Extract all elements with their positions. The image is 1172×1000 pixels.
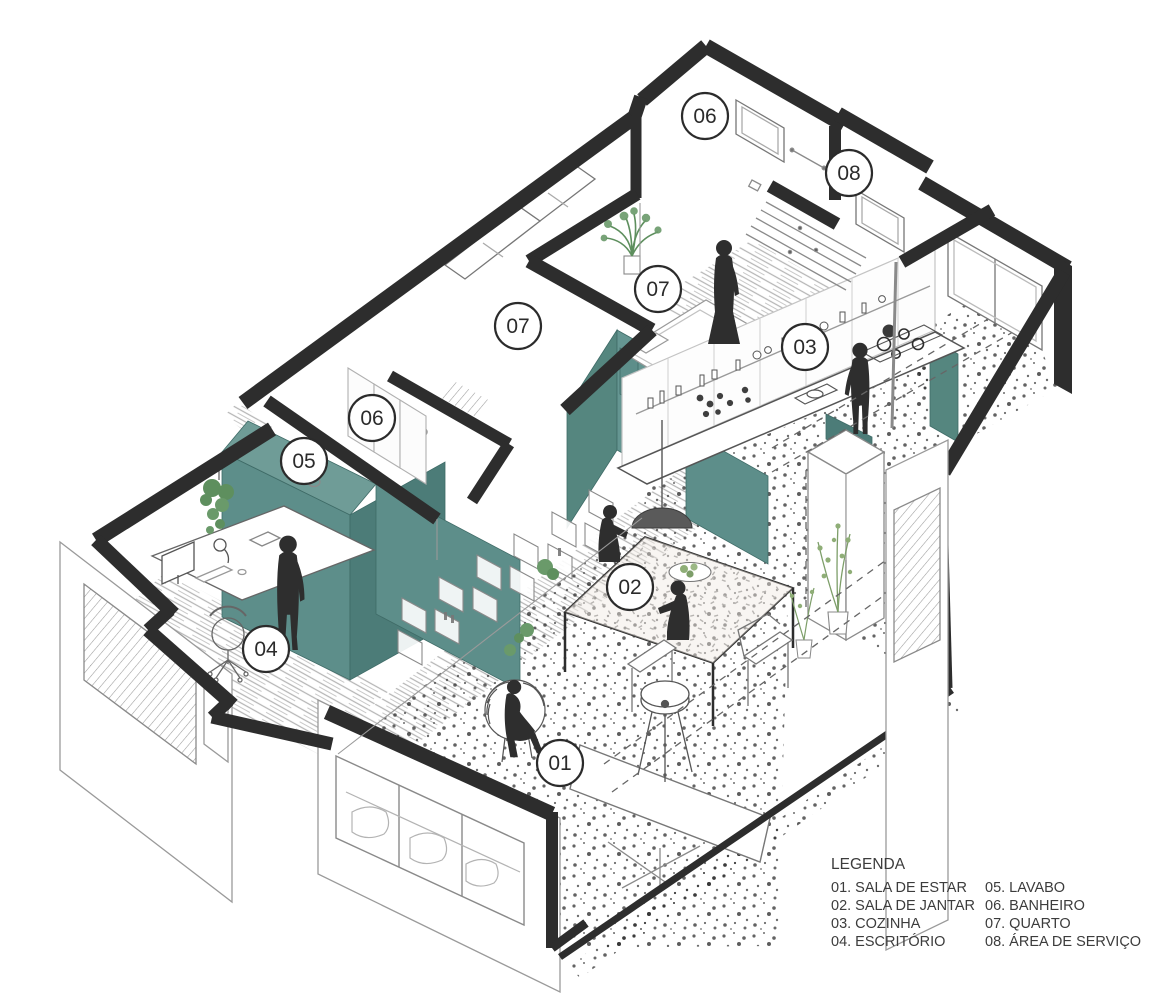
floor-plan-page: 06 08 07 03 07 06 05 04 bbox=[0, 0, 1172, 1000]
bedroom-left-windows bbox=[445, 165, 595, 279]
floor-plan-axonometric: 06 08 07 03 07 06 05 04 bbox=[0, 0, 1172, 1000]
wall-int-bath-b bbox=[472, 444, 509, 501]
svg-text:02: 02 bbox=[618, 576, 641, 599]
svg-text:05: 05 bbox=[292, 450, 315, 473]
room-label-02: 02 bbox=[607, 564, 653, 610]
legend-title: LEGENDA bbox=[831, 856, 906, 873]
legend-item-02: 02. SALA DE JANTAR bbox=[831, 898, 975, 914]
room-label-06-left: 06 bbox=[349, 395, 395, 441]
legend: LEGENDA 01. SALA DE ESTAR 02. SALA DE JA… bbox=[831, 856, 1141, 950]
wall-nw-2 bbox=[243, 118, 633, 403]
mouse bbox=[238, 570, 246, 575]
facade-volume-right bbox=[886, 440, 948, 950]
room-label-07-right: 07 bbox=[635, 266, 681, 312]
room-label-08: 08 bbox=[826, 150, 872, 196]
wall-int-06-08b bbox=[770, 186, 837, 224]
legend-item-08: 08. ÁREA DE SERVIÇO bbox=[985, 933, 1141, 950]
bathroom-window bbox=[736, 100, 784, 162]
legend-item-07: 07. QUARTO bbox=[985, 916, 1071, 932]
svg-text:01: 01 bbox=[548, 752, 571, 775]
svg-text:03: 03 bbox=[793, 336, 816, 359]
right-facade-window bbox=[894, 488, 940, 662]
legend-item-05: 05. LAVABO bbox=[985, 880, 1065, 896]
room-label-06-top: 06 bbox=[682, 93, 728, 139]
room-label-07-left: 07 bbox=[495, 303, 541, 349]
svg-text:07: 07 bbox=[506, 315, 529, 338]
side-table bbox=[648, 681, 676, 695]
room-label-03: 03 bbox=[782, 324, 828, 370]
svg-text:06: 06 bbox=[693, 105, 716, 128]
wall-nw-1 bbox=[642, 46, 706, 100]
legend-item-03: 03. COZINHA bbox=[831, 916, 921, 932]
svg-text:07: 07 bbox=[646, 278, 669, 301]
legend-item-04: 04. ESCRITÓRIO bbox=[831, 933, 945, 950]
room-label-04: 04 bbox=[243, 626, 289, 672]
svg-text:08: 08 bbox=[837, 162, 860, 185]
legend-item-06: 06. BANHEIRO bbox=[985, 898, 1085, 914]
room-label-05: 05 bbox=[281, 438, 327, 484]
wall-ne-3 bbox=[922, 183, 1068, 268]
legend-item-01: 01. SALA DE ESTAR bbox=[831, 880, 967, 896]
service-window bbox=[856, 190, 904, 252]
svg-text:06: 06 bbox=[360, 407, 383, 430]
svg-text:04: 04 bbox=[254, 638, 278, 661]
room-label-01: 01 bbox=[537, 740, 583, 786]
